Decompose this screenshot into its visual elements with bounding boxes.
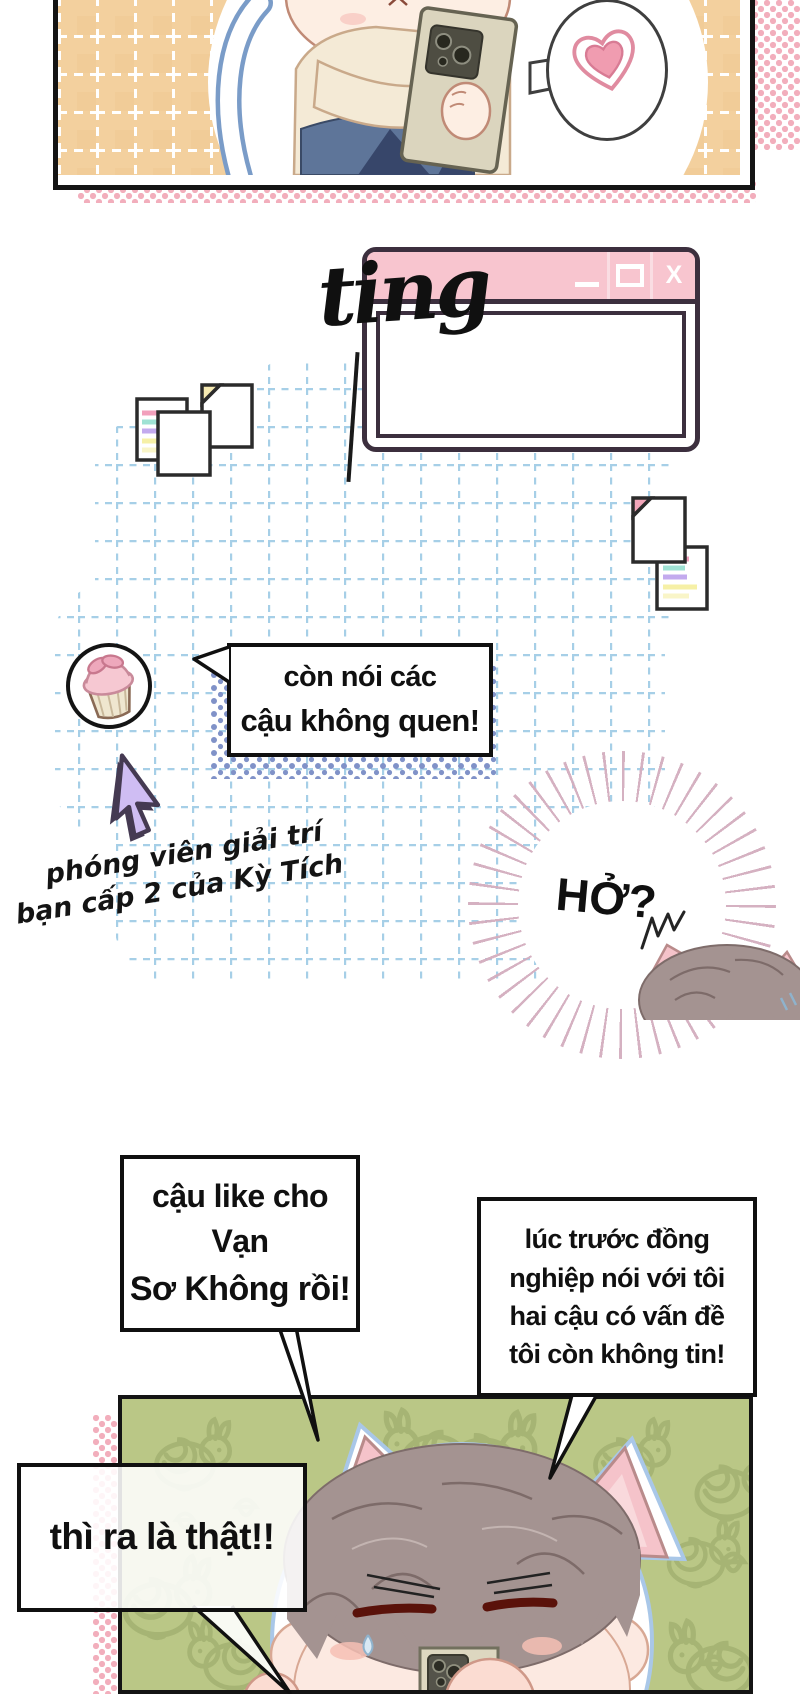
panel-top-frame — [53, 0, 755, 190]
sfx-ting: ting — [315, 238, 491, 346]
bubble2-line1: cậu like cho Vạn — [124, 1174, 356, 1265]
bubble3-line2: nghiệp nói với tôi — [509, 1259, 724, 1297]
bubble1-line1: còn nói các — [284, 657, 437, 698]
hand — [442, 83, 490, 139]
speech-bubble-3: lúc trước đồng nghiệp nói với tôi hai cậ… — [477, 1197, 757, 1397]
closed-eye — [487, 1602, 553, 1607]
speech-bubble-4: thì ra là thật!! — [17, 1463, 307, 1612]
cursor-icon — [95, 752, 175, 844]
pink-dots-right — [752, 0, 800, 150]
bubble3-line3: hai cậu có vấn đề — [510, 1297, 725, 1335]
speech-bubble-1: còn nói các cậu không quen! — [227, 643, 493, 757]
maximize-icon — [607, 252, 650, 299]
document-icon — [633, 498, 685, 562]
document-icons-left — [130, 380, 260, 480]
small-cat-head — [615, 900, 800, 1020]
bubble1-line2: cậu không quen! — [240, 699, 479, 743]
bubble4-text: thì ra là thật!! — [50, 1511, 275, 1564]
comic-page: X ting — [0, 0, 800, 1694]
bubble3-line4: tôi còn không tin! — [509, 1335, 725, 1373]
close-icon: X — [650, 252, 695, 299]
closed-eye — [357, 1608, 432, 1613]
bubble3-line1: lúc trước đồng — [525, 1220, 710, 1258]
document-icon — [158, 412, 210, 475]
cupcake-badge — [66, 643, 152, 729]
heart-icon — [570, 25, 642, 97]
cupcake-icon — [70, 647, 148, 725]
speech-bubble-2: cậu like cho Vạn Sơ Không rồi! — [120, 1155, 360, 1332]
bubble2-line2: Sơ Không rồi! — [130, 1265, 350, 1313]
document-icons-right — [625, 490, 720, 615]
minimize-icon — [567, 252, 607, 299]
